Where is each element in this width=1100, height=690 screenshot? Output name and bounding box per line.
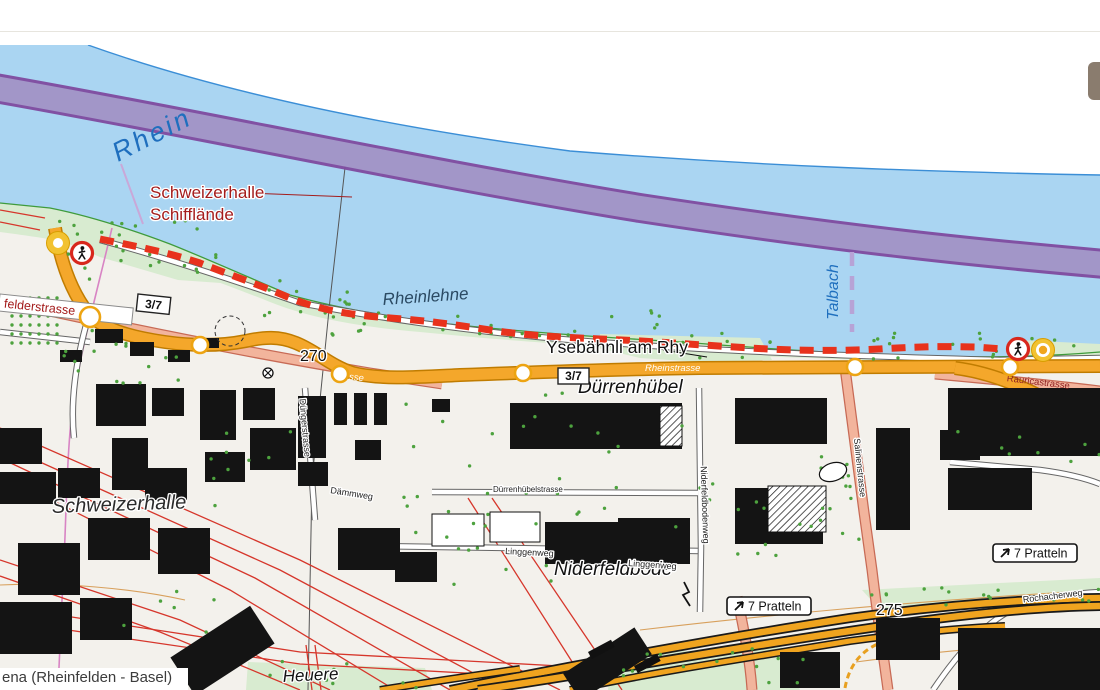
tree: [183, 264, 186, 267]
tree: [346, 290, 349, 293]
map-label-elev275: 275: [876, 602, 903, 619]
map-label-ysebahnli: Ysebähnli am Rhy: [546, 337, 688, 357]
tree: [849, 497, 852, 500]
tree: [468, 464, 471, 467]
building: [58, 468, 100, 498]
hiking-pedestrian-icon: [1008, 339, 1029, 360]
map-canvas[interactable]: RheinSchweizerhalleSchiffländeRheinlehne…: [0, 0, 1100, 690]
building: [338, 528, 400, 570]
building: [334, 393, 347, 425]
tree: [55, 296, 58, 299]
building: [95, 329, 123, 343]
building: [298, 462, 328, 486]
tree: [19, 341, 22, 344]
tree: [213, 504, 216, 507]
tree: [204, 630, 207, 633]
end-marker-center: [1039, 346, 1047, 354]
building: [112, 438, 148, 490]
building: [243, 388, 275, 420]
tree: [225, 451, 228, 454]
building: [958, 628, 1100, 690]
tree: [622, 674, 625, 677]
map-label-duerrenhuebelstrasse: Dürrenhübelstrasse: [493, 485, 563, 494]
tree: [268, 288, 271, 291]
building-hatched: [768, 486, 826, 532]
tree: [631, 669, 634, 672]
tree: [944, 603, 947, 606]
tree: [736, 552, 739, 555]
tree: [616, 445, 619, 448]
tree: [1072, 344, 1075, 347]
tree: [472, 522, 475, 525]
tree: [406, 504, 409, 507]
tree: [504, 568, 507, 571]
building: [395, 552, 437, 582]
map-label-rheinstrasse: Rheinstrasse: [645, 363, 700, 374]
route-waypoint-dot[interactable]: [847, 359, 863, 375]
start-marker-center: [53, 238, 63, 248]
tree: [534, 522, 537, 525]
tree: [268, 674, 271, 677]
tree: [345, 662, 348, 665]
tree: [828, 507, 831, 510]
tree: [989, 596, 992, 599]
tree: [549, 579, 552, 582]
building-outline: [432, 514, 484, 546]
building-hatched: [660, 406, 682, 446]
tree: [412, 445, 415, 448]
tree: [159, 599, 162, 602]
route-direction-sign[interactable]: 7 Pratteln: [993, 544, 1077, 562]
tree: [545, 564, 548, 567]
tree: [157, 260, 160, 263]
tree: [741, 356, 744, 359]
tree: [149, 264, 152, 267]
tree: [67, 252, 70, 255]
tree: [357, 329, 360, 332]
tree: [715, 660, 718, 663]
minor-road: [432, 492, 698, 493]
building: [168, 350, 190, 362]
tree: [447, 510, 450, 513]
building: [88, 518, 150, 560]
tree: [338, 298, 341, 301]
tree: [92, 350, 95, 353]
tree: [263, 314, 266, 317]
tree: [195, 268, 198, 271]
tree: [1081, 598, 1084, 601]
building: [18, 543, 80, 595]
tree: [1000, 446, 1003, 449]
tree: [892, 336, 895, 339]
tree: [947, 590, 950, 593]
tree: [121, 249, 124, 252]
tree: [801, 658, 804, 661]
tree: [653, 326, 656, 329]
tree: [820, 455, 823, 458]
tree: [28, 341, 31, 344]
map-label-schiff1: Schweizerhalle: [150, 183, 264, 202]
tree: [731, 651, 734, 654]
building: [876, 618, 940, 660]
building: [205, 452, 245, 482]
tree: [19, 314, 22, 317]
tree: [857, 538, 860, 541]
tree: [682, 665, 685, 668]
tree: [10, 341, 13, 344]
route-waypoint-dot[interactable]: [332, 366, 348, 382]
tree: [979, 337, 982, 340]
tree: [711, 482, 714, 485]
tree: [76, 232, 79, 235]
tree: [452, 583, 455, 586]
route-waypoint-dot[interactable]: [1002, 359, 1018, 375]
tree: [177, 378, 180, 381]
route-name-text: ena (Rheinfelden - Basel): [2, 669, 172, 686]
tree: [603, 507, 606, 510]
tree: [810, 525, 813, 528]
tree: [91, 329, 94, 332]
tree: [821, 507, 824, 510]
tree: [762, 507, 765, 510]
building-outline: [490, 512, 540, 542]
tree: [120, 222, 123, 225]
building: [0, 428, 42, 464]
tree: [596, 431, 599, 434]
tree: [46, 332, 49, 335]
tree: [940, 586, 943, 589]
hiking-pedestrian-icon: [72, 243, 93, 264]
tree: [164, 356, 167, 359]
tree: [978, 332, 981, 335]
tree: [46, 323, 49, 326]
tree: [332, 315, 335, 318]
tree: [777, 657, 780, 660]
tree: [267, 456, 270, 459]
building: [0, 602, 72, 654]
tree: [751, 647, 754, 650]
map-label-duerrenhuebel: Dürrenhübel: [578, 377, 683, 398]
building: [780, 652, 840, 688]
tree: [212, 598, 215, 601]
tree: [491, 432, 494, 435]
tree: [870, 593, 873, 596]
map-label-schiff2: Schifflände: [150, 205, 234, 224]
tree: [819, 519, 822, 522]
tree: [118, 233, 121, 236]
map-label-talbach: Talbach: [825, 264, 842, 320]
sign-text: 7 Pratteln: [1014, 547, 1068, 561]
route-shield-number: 3/7: [565, 369, 582, 383]
tree: [486, 513, 489, 516]
tree: [885, 592, 888, 595]
map-label-schweizerhalle: Schweizerhalle: [51, 491, 186, 518]
tree: [561, 392, 564, 395]
route-start-marker[interactable]: [47, 232, 70, 255]
top-bar-divider: [0, 31, 1100, 32]
building: [250, 428, 296, 470]
tree: [476, 546, 479, 549]
tree: [872, 339, 875, 342]
tree: [456, 315, 459, 318]
route-waypoint-dot[interactable]: [192, 337, 208, 353]
tree: [755, 500, 758, 503]
map-label-elev270: 270: [300, 348, 327, 365]
tree: [55, 332, 58, 335]
tree: [544, 393, 547, 396]
tree: [658, 314, 661, 317]
tree: [134, 224, 137, 227]
tree: [848, 485, 851, 488]
tree: [847, 474, 850, 477]
map-label-heuere: Heuere: [282, 664, 339, 686]
tree: [467, 548, 470, 551]
building: [0, 472, 56, 504]
tree: [363, 322, 366, 325]
tree: [457, 547, 460, 550]
tree: [414, 531, 417, 534]
tree: [756, 552, 759, 555]
route-name-overlay[interactable]: ena (Rheinfelden - Basel): [0, 668, 188, 690]
tree: [226, 468, 229, 471]
tree: [10, 323, 13, 326]
tree: [384, 315, 387, 318]
tree: [115, 245, 118, 248]
tree: [720, 332, 723, 335]
tree: [607, 450, 610, 453]
tree: [401, 681, 404, 684]
tree: [755, 665, 758, 668]
tree: [175, 590, 178, 593]
building: [510, 403, 682, 449]
tree: [655, 323, 658, 326]
tree: [416, 495, 419, 498]
building: [545, 522, 687, 564]
tree: [196, 271, 199, 274]
tree: [281, 660, 284, 663]
tree: [774, 554, 777, 557]
tree: [674, 525, 677, 528]
tree: [100, 231, 103, 234]
route-waypoint-dot[interactable]: [515, 365, 531, 381]
building: [735, 398, 827, 444]
route-shield-number: 3/7: [144, 297, 162, 313]
tree: [796, 681, 799, 684]
tree: [522, 425, 525, 428]
route-end-marker[interactable]: [1032, 339, 1055, 362]
tree: [841, 532, 844, 535]
tree: [64, 350, 67, 353]
tree: [844, 484, 847, 487]
tree: [798, 523, 801, 526]
tree: [58, 220, 61, 223]
tree: [414, 686, 417, 689]
tree: [402, 496, 405, 499]
tree: [289, 430, 292, 433]
tree: [690, 334, 693, 337]
building: [200, 390, 236, 440]
tree: [441, 420, 444, 423]
tree: [441, 328, 444, 331]
tree: [114, 343, 117, 346]
tree: [1030, 337, 1033, 340]
tree: [659, 653, 662, 656]
tree: [764, 543, 767, 546]
tree: [37, 323, 40, 326]
tree: [615, 486, 618, 489]
tree: [767, 681, 770, 684]
tree: [55, 323, 58, 326]
tree: [214, 253, 217, 256]
tree: [345, 302, 348, 305]
tree: [148, 253, 151, 256]
tree: [726, 340, 729, 343]
tree: [876, 337, 879, 340]
tree: [992, 353, 995, 356]
tree: [1083, 443, 1086, 446]
tree: [569, 424, 572, 427]
tree: [195, 227, 198, 230]
tree: [996, 589, 999, 592]
tree: [610, 315, 613, 318]
tree: [247, 459, 250, 462]
tree: [73, 360, 76, 363]
building: [374, 393, 387, 425]
tree: [404, 403, 407, 406]
tree: [138, 381, 141, 384]
building: [96, 384, 146, 426]
tree: [212, 477, 215, 480]
building: [354, 393, 367, 425]
tree: [737, 508, 740, 511]
tree: [147, 365, 150, 368]
tree: [209, 457, 212, 460]
tree: [299, 310, 302, 313]
tree: [46, 341, 49, 344]
tree: [331, 333, 334, 336]
tree: [10, 332, 13, 335]
tree: [1053, 338, 1056, 341]
tree: [72, 224, 75, 227]
tree: [55, 341, 58, 344]
tree: [77, 369, 80, 372]
tree: [121, 381, 124, 384]
building: [152, 388, 184, 416]
tree: [575, 512, 578, 515]
tree: [982, 593, 985, 596]
tree: [278, 279, 281, 282]
tree: [115, 380, 118, 383]
tree: [62, 354, 65, 357]
tree: [124, 342, 127, 345]
tree: [19, 323, 22, 326]
building: [876, 428, 910, 530]
building: [948, 468, 1032, 510]
building: [432, 399, 450, 412]
tree: [1087, 599, 1090, 602]
tree: [19, 332, 22, 335]
tree: [173, 606, 176, 609]
building: [80, 598, 132, 640]
tree: [478, 332, 481, 335]
tree: [649, 309, 652, 312]
tree: [1069, 460, 1072, 463]
tree: [295, 290, 298, 293]
tree: [872, 357, 875, 360]
tree: [1008, 452, 1011, 455]
tree: [37, 341, 40, 344]
tree: [225, 432, 228, 435]
route-direction-sign[interactable]: 7 Pratteln: [727, 597, 811, 615]
tree: [558, 477, 561, 480]
tree: [768, 341, 771, 344]
tree: [445, 535, 448, 538]
top-bar: [0, 0, 1100, 45]
tree: [896, 356, 899, 359]
tree: [122, 624, 125, 627]
tree: [533, 415, 536, 418]
tree: [28, 323, 31, 326]
tree: [521, 332, 524, 335]
route-shield: 3/7: [136, 294, 171, 314]
tree: [573, 330, 576, 333]
tree: [923, 587, 926, 590]
route-waypoint-dot[interactable]: [80, 307, 100, 327]
building: [130, 342, 154, 356]
tree: [888, 342, 891, 345]
tree: [622, 668, 625, 671]
building: [158, 528, 210, 574]
tree: [88, 277, 91, 280]
tree: [268, 311, 271, 314]
tree: [175, 355, 178, 358]
tree: [119, 259, 122, 262]
tree: [680, 424, 683, 427]
building: [355, 440, 381, 460]
sign-text: 7 Pratteln: [748, 600, 802, 614]
tree: [956, 430, 959, 433]
tree: [486, 492, 489, 495]
tree: [83, 266, 86, 269]
route-shield: 3/7: [558, 368, 589, 384]
tree: [37, 332, 40, 335]
building: [940, 430, 980, 460]
tree: [893, 332, 896, 335]
tree: [646, 652, 649, 655]
tree: [110, 221, 113, 224]
tree: [484, 524, 487, 527]
tree: [1036, 451, 1039, 454]
tree: [10, 314, 13, 317]
map-panel-toggle-button[interactable]: [1088, 62, 1100, 100]
tree: [28, 332, 31, 335]
tree: [1018, 435, 1021, 438]
tree: [698, 356, 701, 359]
